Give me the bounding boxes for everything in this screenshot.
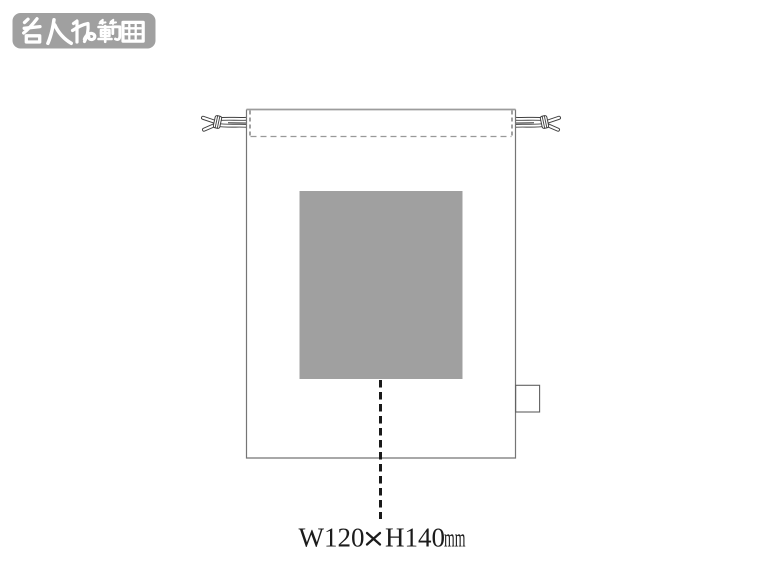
svg-text:W120: W120 — [299, 523, 365, 553]
svg-text:H140: H140 — [385, 523, 445, 553]
svg-text:mm: mm — [444, 524, 466, 553]
